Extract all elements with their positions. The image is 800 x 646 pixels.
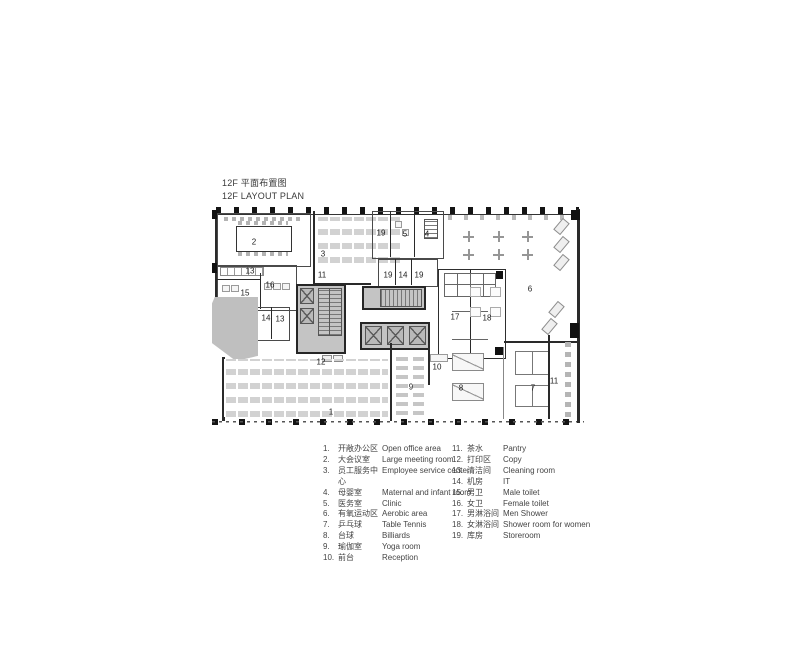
room-label-6: 6 <box>528 285 532 294</box>
gym-table <box>490 307 501 317</box>
gym-table <box>490 287 501 297</box>
wall-column <box>496 271 503 279</box>
right-wall <box>577 209 580 423</box>
room-label-3: 3 <box>321 250 325 259</box>
gym-equipment <box>522 249 533 260</box>
room-label-14: 14 <box>262 314 271 323</box>
room-1-desks <box>224 359 388 417</box>
room-label-17: 17 <box>451 313 460 322</box>
legend-item-3: 3.员工服务中心Employee service center <box>323 466 471 488</box>
legend-item-8: 8.台球Billiards <box>323 531 471 542</box>
chair-row <box>238 221 288 225</box>
toilet-fixture <box>231 285 239 292</box>
gym-table <box>470 307 481 317</box>
room-3-wall <box>313 211 315 283</box>
elevator <box>300 308 314 324</box>
room-label-11: 11 <box>318 271 326 280</box>
room-label-14: 14 <box>399 271 408 280</box>
legend-item-11: 11.茶水Pantry <box>452 444 590 455</box>
room-label-12: 12 <box>317 358 326 367</box>
legend-item-12: 12.打印区Copy <box>452 455 590 466</box>
gym-equipment <box>463 231 474 242</box>
treadmill <box>553 218 570 235</box>
stair <box>318 288 342 336</box>
yoga-wall <box>390 343 392 421</box>
gym-wall-equipment <box>448 215 574 220</box>
legend-item-10: 10.前台Reception <box>323 553 471 564</box>
conference-table <box>236 226 292 252</box>
legend-item-19: 19.库房Storeroom <box>452 531 590 542</box>
legend-item-14: 14.机房IT <box>452 477 590 488</box>
elevator <box>409 326 426 345</box>
floor-plan-sheet: { "title": { "zh": "12F 平面布置图", "en": "1… <box>0 0 800 646</box>
bottom-column-grid-dashed <box>212 419 584 425</box>
reception-desk <box>430 354 448 362</box>
yoga-wall <box>428 343 430 385</box>
gym-equipment <box>522 231 533 242</box>
partition-wall <box>390 211 391 257</box>
legend-item-1: 1.开敞办公区Open office area <box>323 444 471 455</box>
legend-item-13: 13.清洁间Cleaning room <box>452 466 590 477</box>
pingpong-table <box>515 351 549 375</box>
elevator <box>365 326 382 345</box>
room-label-11: 11 <box>550 377 558 386</box>
elevator <box>300 288 314 304</box>
room-label-18: 18 <box>483 314 492 323</box>
room-label-19: 19 <box>384 271 393 280</box>
room-label-19: 19 <box>377 229 386 238</box>
wall-column <box>495 347 503 355</box>
partition-wall <box>217 279 260 280</box>
legend-item-9: 9.瑜伽室Yoga room <box>323 542 471 553</box>
room-label-13: 13 <box>246 267 255 276</box>
room-label-10: 10 <box>433 363 442 372</box>
room-label-2: 2 <box>252 238 256 247</box>
toilet-fixture <box>222 285 230 292</box>
room-divider <box>503 347 504 419</box>
room-label-13: 13 <box>276 315 285 324</box>
toilet-stalls <box>220 267 264 276</box>
gym-equipment <box>463 249 474 260</box>
legend-item-18: 18.女淋浴间Shower room for women <box>452 520 590 531</box>
legend-item-15: 15.男卫Male toilet <box>452 488 590 499</box>
treadmill <box>553 236 570 253</box>
room-label-16: 16 <box>266 281 275 290</box>
chair-row <box>238 252 288 256</box>
legend-column-1: 1.开敞办公区Open office area 2.大会议室Large meet… <box>323 444 471 564</box>
legend-item-5: 5.医务室Clinic <box>323 499 471 510</box>
pantry-counter <box>565 341 571 417</box>
shower-partition <box>452 339 488 340</box>
treadmill <box>541 318 558 335</box>
partition-wall <box>411 259 412 285</box>
gym-table <box>470 287 481 297</box>
drawing-title: 12F 平面布置图 12F LAYOUT PLAN <box>222 177 304 203</box>
legend-item-6: 6.有氧运动区Aerobic area <box>323 509 471 520</box>
legend-item-2: 2.大会议室Large meeting room <box>323 455 471 466</box>
billiard-table <box>452 383 484 401</box>
title-zh: 12F 平面布置图 <box>222 177 304 190</box>
treadmill <box>553 254 570 271</box>
room-label-15: 15 <box>241 289 250 298</box>
gym-equipment <box>493 249 504 260</box>
partition-wall <box>260 273 261 309</box>
toilet-fixture <box>282 283 290 290</box>
left-core-shaded <box>212 297 258 361</box>
room-label-9: 9 <box>409 383 413 392</box>
partition-wall <box>395 259 396 285</box>
room-3-wall <box>313 283 371 285</box>
room-label-19: 19 <box>415 271 424 280</box>
legend-item-17: 17.男淋浴间Men Shower <box>452 509 590 520</box>
room-label-4: 4 <box>425 230 429 239</box>
room-label-7: 7 <box>531 384 535 393</box>
stair <box>380 289 422 307</box>
treadmill <box>548 301 565 318</box>
legend-column-2: 11.茶水Pantry 12.打印区Copy 13.清洁间Cleaning ro… <box>452 444 590 542</box>
partition-wall <box>414 211 415 257</box>
title-en: 12F LAYOUT PLAN <box>222 190 304 203</box>
right-wall-column <box>570 323 579 338</box>
legend-item-16: 16.女卫Female toilet <box>452 499 590 510</box>
clinic-chair <box>395 221 402 228</box>
room-label-8: 8 <box>459 384 463 393</box>
room-label-5: 5 <box>403 230 407 239</box>
floor-plan: 2 3 11 13 16 15 14 13 12 1 19 5 4 19 14 … <box>212 207 584 430</box>
gym-equipment <box>493 231 504 242</box>
stair-rail <box>329 288 330 336</box>
legend-item-4: 4.母婴室Maternal and infant room <box>323 488 471 499</box>
partition-wall <box>271 307 272 339</box>
room-label-1: 1 <box>329 408 333 417</box>
billiard-table <box>452 353 484 371</box>
legend-item-7: 7.乒乓球Table Tennis <box>323 520 471 531</box>
